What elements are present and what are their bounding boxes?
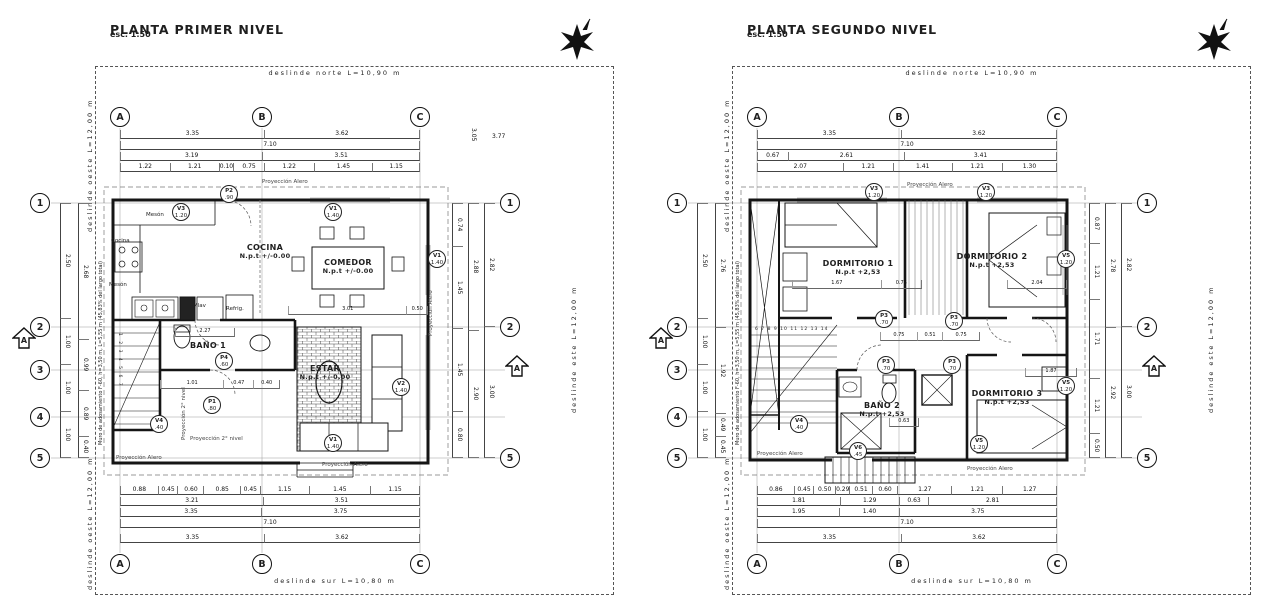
dim-value: 0.75 bbox=[233, 163, 264, 172]
room-label-dormitorio1: DORMITORIO 1 N.p.t +2,53 bbox=[808, 259, 908, 276]
fixture-label-cocina: Cocina bbox=[111, 238, 130, 244]
dim-row: 7.10 bbox=[120, 141, 420, 150]
grid-bubble-5: 5 bbox=[667, 448, 687, 468]
dim-value: 2.50 bbox=[697, 203, 708, 318]
dim-value: 1.21 bbox=[952, 163, 1002, 172]
grid-bubble-2: 2 bbox=[500, 317, 520, 337]
dim-row: 7.10 bbox=[757, 519, 1057, 528]
dim-value: 0.89 bbox=[78, 390, 89, 436]
dim-col: 2.782.92 bbox=[1105, 203, 1116, 458]
dim-value: 0.60 bbox=[177, 486, 203, 495]
dim-value: 2.82 bbox=[1121, 203, 1132, 326]
dim-row: 3.353.62 bbox=[757, 130, 1057, 139]
section-marker: A bbox=[12, 327, 36, 349]
grid-bubble-3: 3 bbox=[30, 360, 50, 380]
dim-value: 1.27 bbox=[1002, 486, 1057, 495]
room-label-bano1: BAÑO 1 bbox=[178, 341, 238, 350]
dim-row: 3.353.75 bbox=[120, 508, 420, 517]
proyeccion-alero-label: Proyección Alero bbox=[322, 462, 368, 468]
dim-value: 0.87 bbox=[1089, 203, 1100, 243]
dim-value: 1.00 bbox=[60, 364, 71, 410]
door-tag-p3: P3.70 bbox=[943, 356, 961, 374]
dim-value: 0.40 bbox=[78, 436, 89, 458]
room-label-comedor: COMEDOR N.p.t +/-0.00 bbox=[308, 258, 388, 275]
dim-value: 0.29 bbox=[835, 486, 849, 495]
dim-value: 1.15 bbox=[372, 163, 420, 172]
dim-value: 3.51 bbox=[263, 497, 420, 506]
window-tag-v5: V51.20 bbox=[1057, 377, 1075, 395]
window-tag-v5: V51.20 bbox=[970, 435, 988, 453]
grid-bubble-1: 1 bbox=[500, 193, 520, 213]
dim-value: 0.75 bbox=[881, 280, 922, 289]
dim-value: 0.51 bbox=[849, 486, 871, 495]
dim-value: 2.90 bbox=[468, 330, 479, 458]
dim-value: 1.22 bbox=[120, 163, 170, 172]
dim-row: 1.010.470.40 bbox=[160, 380, 280, 389]
grid-bubble-4: 4 bbox=[667, 407, 687, 427]
dim-value: 1.21 bbox=[170, 163, 219, 172]
dim-value: 1.41 bbox=[893, 163, 952, 172]
section-marker: A bbox=[505, 355, 529, 377]
dim-value: 2.61 bbox=[788, 152, 904, 161]
window-tag-v5: V51.20 bbox=[1057, 250, 1075, 268]
dim-col: 0.871.211.711.210.50 bbox=[1089, 203, 1100, 458]
grid-bubble-A: A bbox=[110, 554, 130, 574]
dim-value: 2.76 bbox=[715, 203, 726, 327]
dim-value: 2.81 bbox=[928, 497, 1057, 506]
dim-value: 3.35 bbox=[120, 130, 264, 139]
door-tag-p3: P3.70 bbox=[877, 356, 895, 374]
room-label-dormitorio3: DORMITORIO 3 N.p.t +2,53 bbox=[957, 389, 1057, 406]
dim-value: 3.00 bbox=[484, 326, 495, 458]
dim-row: 0.860.450.500.290.510.601.271.211.27 bbox=[757, 486, 1057, 495]
room-label-bano2: BAÑO 2 N.p.t +2,53 bbox=[852, 401, 912, 418]
dim-value: 3.51 bbox=[262, 152, 420, 161]
room-label-dormitorio2: DORMITORIO 2 N.p.t +2,53 bbox=[942, 252, 1042, 269]
dim-value: 0.50 bbox=[813, 486, 835, 495]
dim-row: 3.353.62 bbox=[757, 534, 1057, 543]
dim-value: 1.29 bbox=[840, 497, 899, 506]
dim-value: 2.07 bbox=[757, 163, 843, 172]
fixture-label-meson: Mesón bbox=[146, 212, 164, 218]
dim-value: 7.10 bbox=[757, 519, 1057, 528]
dim-value: 3.35 bbox=[120, 534, 264, 543]
grid-bubble-A: A bbox=[110, 107, 130, 127]
proyeccion-alero-label: Proyección Alero bbox=[907, 182, 953, 188]
dim-value: 2.78 bbox=[1105, 203, 1116, 327]
grid-bubble-B: B bbox=[252, 107, 272, 127]
dim-value: 2.92 bbox=[1105, 327, 1116, 458]
dim-value: 1.15 bbox=[370, 486, 420, 495]
dim-row: 0.750.510.75 bbox=[880, 332, 980, 341]
dim-value: 1.00 bbox=[60, 411, 71, 458]
dim-value: 3.35 bbox=[757, 130, 901, 139]
dim-value: 3.41 bbox=[904, 152, 1057, 161]
dim-value: 0.45 bbox=[715, 436, 726, 458]
dim-value: 3.62 bbox=[901, 130, 1057, 139]
dim-value: 3.35 bbox=[120, 508, 261, 517]
dim-value: 1.22 bbox=[264, 163, 314, 172]
dim-value: 3.77 bbox=[492, 133, 505, 140]
dim-value: 0.45 bbox=[240, 486, 260, 495]
dim-value: 1.67 bbox=[792, 280, 881, 289]
dim-col: 2.761.920.490.45 bbox=[715, 203, 726, 458]
dim-col: 2.823.00 bbox=[1121, 203, 1132, 458]
dim-row: 7.10 bbox=[120, 519, 420, 528]
dim-row: 3.010.50 bbox=[288, 306, 428, 315]
grid-bubble-B: B bbox=[889, 554, 909, 574]
dim-row: 2.27 bbox=[175, 328, 235, 337]
floorplan-drawing bbox=[100, 185, 460, 495]
proyeccion-alero-label: Proyección Alero bbox=[116, 455, 162, 461]
dim-col: 2.680.990.890.40 bbox=[78, 203, 89, 458]
dim-col: 2.882.90 bbox=[468, 203, 479, 458]
dim-value: 7.10 bbox=[757, 141, 1057, 150]
proyeccion-2nivel-label: Proyección 2° nivel bbox=[190, 436, 243, 442]
dim-value: 0.85 bbox=[203, 486, 239, 495]
dim-value: 0.50 bbox=[1089, 433, 1100, 458]
dim-value: 3.05 bbox=[470, 128, 477, 141]
dim-value: 1.21 bbox=[951, 486, 1002, 495]
dim-value: 1.45 bbox=[314, 163, 373, 172]
dim-value: 0.86 bbox=[757, 486, 794, 495]
plan-primer-nivel: PLANTA PRIMER NIVEL esc. 1:50 deslinde n… bbox=[0, 0, 640, 606]
dim-value: 1.21 bbox=[843, 163, 893, 172]
door-tag-p3: P3.70 bbox=[875, 310, 893, 328]
dim-row: 1.951.403.75 bbox=[757, 508, 1057, 517]
dim-value: 2.82 bbox=[484, 203, 495, 326]
grid-bubble-5: 5 bbox=[500, 448, 520, 468]
proyeccion-alero-label: Proyección Alero bbox=[428, 272, 434, 336]
fixture-label-mlav: Mlav bbox=[193, 303, 206, 309]
dim-value: 7.10 bbox=[120, 141, 420, 150]
dim-value: 3.75 bbox=[261, 508, 420, 517]
grid-bubble-A: A bbox=[747, 554, 767, 574]
dim-value: 0.60 bbox=[872, 486, 898, 495]
dim-value: 0.74 bbox=[452, 203, 463, 246]
dim-value: 1.87 bbox=[1025, 368, 1077, 377]
grid-bubble-5: 5 bbox=[1137, 448, 1157, 468]
dim-value: 1.00 bbox=[60, 318, 71, 364]
grid-bubble-2: 2 bbox=[1137, 317, 1157, 337]
dim-value: 2.04 bbox=[1007, 280, 1067, 289]
dim-value: 0.75 bbox=[942, 332, 980, 341]
dim-col: 2.823.00 bbox=[484, 203, 495, 458]
window-tag-v3: V31.20 bbox=[865, 183, 883, 201]
room-label-cocina: COCINA N.p.t +/-0.00 bbox=[225, 243, 305, 260]
window-tag-v1: V11.40 bbox=[324, 434, 342, 452]
dim-value: 1.27 bbox=[897, 486, 951, 495]
grid-bubble-5: 5 bbox=[30, 448, 50, 468]
window-tag-v3: V31.20 bbox=[977, 183, 995, 201]
dim-row: 0.672.613.41 bbox=[757, 152, 1057, 161]
dim-value: 1.21 bbox=[1089, 243, 1100, 299]
dim-row: 1.87 bbox=[1025, 368, 1077, 377]
dim-value: 0.10 bbox=[219, 163, 233, 172]
section-marker: A bbox=[649, 327, 673, 349]
dim-value: 1.45 bbox=[452, 328, 463, 411]
door-tag-p2: P2.90 bbox=[220, 185, 238, 203]
dim-value: 0.49 bbox=[715, 413, 726, 436]
grid-bubble-3: 3 bbox=[667, 360, 687, 380]
dim-value: 0.51 bbox=[917, 332, 942, 341]
grid-bubble-C: C bbox=[410, 107, 430, 127]
plan-segundo-nivel: PLANTA SEGUNDO NIVEL esc. 1:50 deslinde … bbox=[637, 0, 1277, 606]
dim-value: 0.75 bbox=[880, 332, 917, 341]
dim-value: 1.40 bbox=[839, 508, 898, 517]
dim-value: 2.27 bbox=[175, 328, 235, 337]
dim-value: 1.01 bbox=[160, 380, 223, 389]
grid-bubble-C: C bbox=[410, 554, 430, 574]
proyeccion-alero-label: Proyección Alero bbox=[967, 466, 1013, 472]
dim-row: 3.353.62 bbox=[120, 534, 420, 543]
grid-bubble-B: B bbox=[252, 554, 272, 574]
dim-value: 0.67 bbox=[757, 152, 788, 161]
dim-value: 1.45 bbox=[452, 246, 463, 329]
grid-bubble-A: A bbox=[747, 107, 767, 127]
door-tag-p1: P1.80 bbox=[203, 396, 221, 414]
dim-value: 1.00 bbox=[697, 318, 708, 364]
dim-value: 0.63 bbox=[889, 418, 919, 427]
dim-value: 1.00 bbox=[697, 364, 708, 410]
window-tag-v6: V6.45 bbox=[849, 442, 867, 460]
muro-adosamiento-note: Muro de adosamiento F-60, h=3,50 m, L=5,… bbox=[98, 205, 104, 445]
dim-value: 3.00 bbox=[1121, 326, 1132, 458]
dim-row: 3.213.51 bbox=[120, 497, 420, 506]
stair-step-numbers: 1 2 3 4 5 6 7 bbox=[117, 333, 122, 421]
door-tag-p4: P4.60 bbox=[215, 352, 233, 370]
dim-value: 3.35 bbox=[757, 534, 901, 543]
dim-col: 0.741.451.450.80 bbox=[452, 203, 463, 458]
grid-bubble-C: C bbox=[1047, 554, 1067, 574]
dim-value: 1.15 bbox=[260, 486, 309, 495]
dim-value: 1.00 bbox=[697, 411, 708, 458]
dim-value: 1.95 bbox=[757, 508, 839, 517]
window-tag-v2: V21.40 bbox=[392, 378, 410, 396]
dim-row: 0.63 bbox=[889, 418, 935, 427]
dim-value: 0.63 bbox=[899, 497, 928, 506]
drawing-canvas: PLANTA PRIMER NIVEL esc. 1:50 deslinde n… bbox=[0, 0, 1280, 606]
dim-value: 3.19 bbox=[120, 152, 262, 161]
dim-value: 0.47 bbox=[223, 380, 253, 389]
dim-row: 1.811.290.632.81 bbox=[757, 497, 1057, 506]
proyeccion-2nivel-label: Proyección 2° nivel bbox=[181, 382, 187, 440]
grid-bubble-1: 1 bbox=[667, 193, 687, 213]
dim-value: 7.10 bbox=[120, 519, 420, 528]
grid-bubble-B: B bbox=[889, 107, 909, 127]
dim-value: 0.88 bbox=[120, 486, 158, 495]
dim-value: 1.81 bbox=[757, 497, 840, 506]
dim-row: 3.193.51 bbox=[120, 152, 420, 161]
dim-value: 2.88 bbox=[468, 203, 479, 330]
window-tag-v4: V4.40 bbox=[150, 415, 168, 433]
grid-bubble-1: 1 bbox=[30, 193, 50, 213]
grid-bubble-4: 4 bbox=[30, 407, 50, 427]
room-label-estar: ESTAR N.p.t +/-0.00 bbox=[295, 364, 355, 381]
dim-value: 1.92 bbox=[715, 327, 726, 413]
dim-value: 0.45 bbox=[158, 486, 178, 495]
proyeccion-alero-label: Proyección Alero bbox=[262, 179, 308, 185]
fixture-label-meson: Mesón bbox=[109, 282, 127, 288]
dim-value: 0.99 bbox=[78, 339, 89, 390]
dim-value: 3.01 bbox=[288, 306, 406, 315]
muro-adosamiento-note: Muro de adosamiento F-60, h=3,50 m, L=5,… bbox=[735, 205, 741, 445]
dim-value: 3.62 bbox=[264, 130, 420, 139]
dim-value: 0.45 bbox=[794, 486, 814, 495]
dim-value: 2.68 bbox=[78, 203, 89, 339]
window-tag-v1: V11.40 bbox=[324, 203, 342, 221]
dim-value: 3.75 bbox=[899, 508, 1057, 517]
dim-row: 1.670.75 bbox=[792, 280, 922, 289]
dim-value: 3.62 bbox=[264, 534, 420, 543]
window-tag-v1: V11.40 bbox=[428, 250, 446, 268]
dim-col: 2.501.001.001.00 bbox=[697, 203, 708, 458]
dim-row: 2.071.211.411.211.30 bbox=[757, 163, 1057, 172]
dim-value: 1.45 bbox=[309, 486, 370, 495]
proyeccion-alero-label: Proyección Alero bbox=[757, 451, 803, 457]
dim-value: 1.30 bbox=[1002, 163, 1057, 172]
dim-value: 2.50 bbox=[60, 203, 71, 318]
window-tag-v4: V4.40 bbox=[790, 415, 808, 433]
dim-row: 7.10 bbox=[757, 141, 1057, 150]
dim-col: 2.501.001.001.00 bbox=[60, 203, 71, 458]
window-tag-v3: V31.20 bbox=[172, 203, 190, 221]
dim-value: 0.80 bbox=[452, 411, 463, 458]
dim-row: 0.880.450.600.850.451.151.451.15 bbox=[120, 486, 420, 495]
dim-value: 3.21 bbox=[120, 497, 263, 506]
section-marker: A bbox=[1142, 355, 1166, 377]
dim-row: 1.221.210.100.751.221.451.15 bbox=[120, 163, 420, 172]
dim-row: 2.04 bbox=[1007, 280, 1067, 289]
dim-value: 1.71 bbox=[1089, 299, 1100, 377]
fixture-label-refrig: Refrig. bbox=[226, 306, 244, 312]
stair-step-numbers: 6 7 8 9 10 11 12 13 14 bbox=[755, 327, 867, 332]
dim-value: 0.50 bbox=[406, 306, 428, 315]
dim-value: 3.62 bbox=[901, 534, 1057, 543]
dim-value: 1.21 bbox=[1089, 378, 1100, 434]
grid-bubble-C: C bbox=[1047, 107, 1067, 127]
dim-row: 3.353.62 bbox=[120, 130, 420, 139]
grid-bubble-1: 1 bbox=[1137, 193, 1157, 213]
door-tag-p3: P3.70 bbox=[945, 312, 963, 330]
dim-value: 0.40 bbox=[253, 380, 280, 389]
